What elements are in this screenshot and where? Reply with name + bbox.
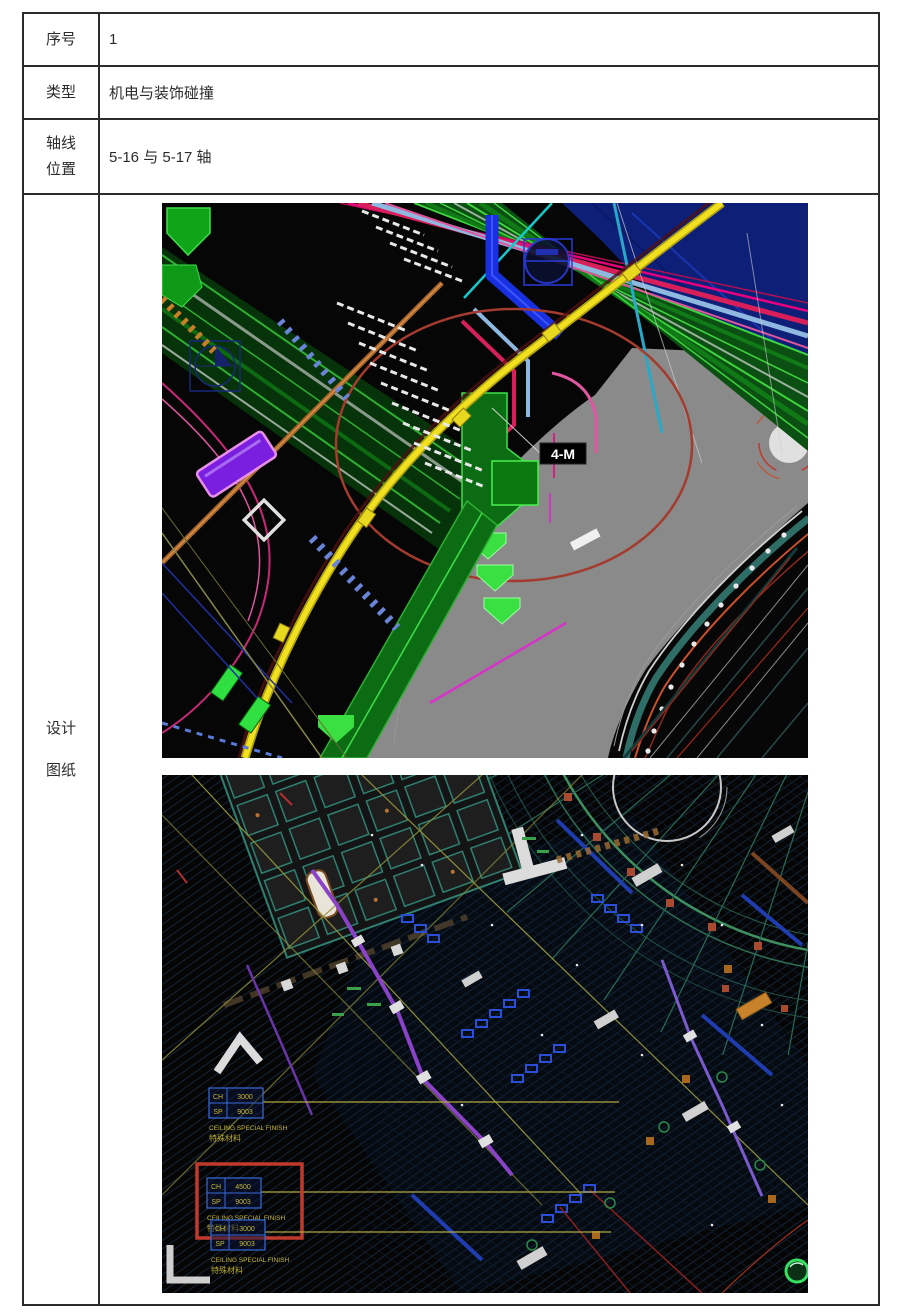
tag2-ch-val: 4500 (235, 1184, 251, 1191)
tag1-caption-en: CEILING SPECIAL FINISH (209, 1125, 287, 1132)
tag2-sp-key: SP (211, 1199, 221, 1206)
document-page: 序号 1 类型 机电与装饰碰撞 轴线 位置 5-16 与 5-17 轴 设计 图… (0, 0, 900, 1314)
type-label: 类型 (24, 67, 100, 118)
tag2-sp-val: 9003 (235, 1199, 251, 1206)
cad-plan-ceiling-finish: CH 3000 SP 9003 CEILING SPECIAL FINISH 特… (162, 775, 808, 1293)
survey-point-icon (786, 1260, 808, 1282)
serial-value: 1 (100, 14, 878, 65)
serial-label: 序号 (24, 14, 100, 65)
tag3-sp-val: 9003 (239, 1241, 255, 1248)
axis-label-line1: 轴线 (46, 131, 76, 157)
row-type: 类型 机电与装饰碰撞 (24, 67, 878, 120)
axis-value: 5-16 与 5-17 轴 (100, 120, 878, 193)
drawings-label-line2: 图纸 (46, 750, 76, 792)
serial-label-text: 序号 (46, 27, 76, 53)
tag1-ch-val: 3000 (237, 1094, 253, 1101)
drawings-label: 设计 图纸 (24, 195, 100, 1304)
type-label-text: 类型 (46, 80, 76, 106)
cad-plan-mep-collision: 4-M (162, 203, 808, 758)
axis-label: 轴线 位置 (24, 120, 100, 193)
axis-label-line2: 位置 (46, 157, 76, 183)
tag1-caption-zh: 特殊材料 (209, 1133, 241, 1143)
tag3-ch-val: 3000 (239, 1226, 255, 1233)
type-value: 机电与装饰碰撞 (100, 67, 878, 118)
drawings-label-line1: 设计 (46, 708, 76, 750)
tag3-caption-zh: 特殊材料 (211, 1265, 243, 1275)
tag3-caption-en: CEILING SPECIAL FINISH (211, 1257, 289, 1264)
tag1-sp-val: 9003 (237, 1109, 253, 1116)
row-axis-location: 轴线 位置 5-16 与 5-17 轴 (24, 120, 878, 195)
tag3-sp-key: SP (215, 1241, 225, 1248)
tag1-ch-key: CH (213, 1094, 223, 1101)
issue-table: 序号 1 类型 机电与装饰碰撞 轴线 位置 5-16 与 5-17 轴 设计 图… (22, 12, 880, 1306)
drawings-canvas: 4-M (100, 195, 878, 1304)
tag3-ch-key: CH (215, 1226, 225, 1233)
row-design-drawings: 设计 图纸 (24, 195, 878, 1304)
tag1-sp-key: SP (213, 1109, 223, 1116)
row-serial: 序号 1 (24, 14, 878, 67)
grid-tag-4m-text: 4-M (551, 446, 575, 462)
tag2-ch-key: CH (211, 1184, 221, 1191)
